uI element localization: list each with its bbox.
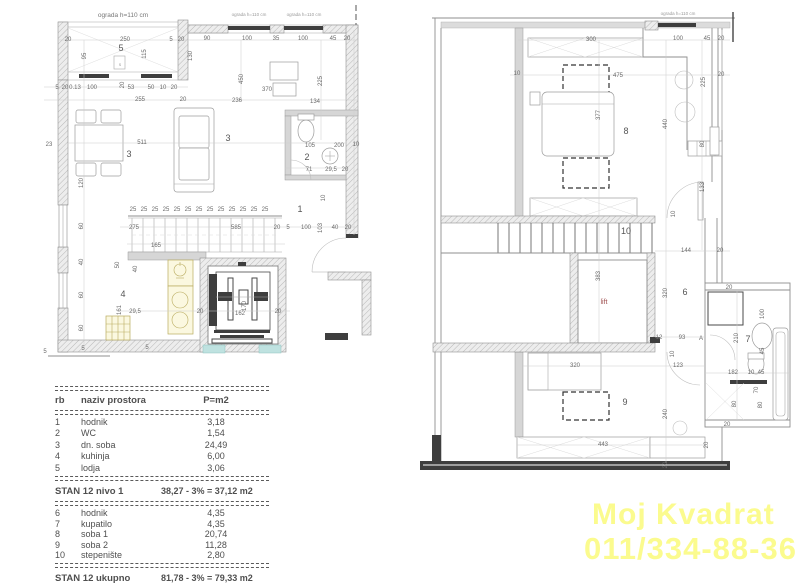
wardrobe <box>530 198 637 216</box>
kitchen-stove <box>168 286 193 334</box>
dim-label: 100 <box>673 36 684 42</box>
room-number-label: 10 <box>621 226 631 236</box>
watermark-phone: 011/334-88-36 <box>584 531 797 567</box>
outer-walls <box>420 12 735 470</box>
table-row: 1hodnik3,18 <box>55 417 269 428</box>
dim-label: 20 <box>178 37 185 43</box>
dim-label: 115 <box>142 49 148 59</box>
dim-label: 134 <box>310 99 321 105</box>
top-wall <box>188 5 358 33</box>
total-value: 81,78 - 3% = 79,33 m2 <box>161 573 269 583</box>
dim-label: 20 <box>62 85 69 91</box>
row-rb: 10 <box>55 550 81 561</box>
dim-label: 20 <box>345 225 352 231</box>
washing-machine <box>708 292 743 325</box>
dim-label: 95 <box>82 52 88 59</box>
dim-label: 10 <box>671 210 677 217</box>
dim-label: 20 <box>717 248 724 254</box>
room-number-label: 1 <box>297 204 302 214</box>
dim-label: 275 <box>129 225 140 231</box>
dim-label: s <box>119 62 122 67</box>
window-sill <box>284 26 323 30</box>
room-number-label: 2 <box>304 152 309 162</box>
dim-label: 144 <box>681 248 692 254</box>
dim-label: 225 <box>701 76 707 87</box>
dim-label: 255 <box>135 97 146 103</box>
right-plan-labels: ograda h=110 cm3001004520104752022537744… <box>514 11 766 468</box>
window-sill <box>141 74 172 78</box>
table-header: rb naziv prostora P=m2 <box>55 393 269 408</box>
dim-label: 182 <box>728 370 739 376</box>
dim-label: 25 <box>174 207 181 213</box>
dim-label: 25 <box>152 207 159 213</box>
dim-label: 20 <box>180 97 187 103</box>
left-outer-wall <box>58 80 68 352</box>
dim-label: 10 <box>514 71 521 77</box>
dim-label: 23 <box>46 142 53 148</box>
chair <box>101 110 121 123</box>
room-number-label: 5 <box>118 43 123 53</box>
window-sill <box>228 26 270 30</box>
table-row: 9soba 211,28 <box>55 540 269 551</box>
washbasin <box>752 323 772 349</box>
dim-label: 200 <box>334 143 345 149</box>
dim-label: ograda h=110 cm <box>287 12 322 17</box>
row-name: soba 2 <box>81 540 163 551</box>
dim-label: 25 <box>229 207 236 213</box>
dim-label: 25 <box>163 207 170 213</box>
room-number-label: 4 <box>120 289 125 299</box>
room-area-table: rb naziv prostora P=m2 1hodnik3,182WC1,5… <box>55 384 269 583</box>
dim-label: 25 <box>130 207 137 213</box>
radiator <box>710 127 719 155</box>
entry-door-arc <box>312 238 346 272</box>
row-area: 3,18 <box>163 417 269 428</box>
table-row: 6hodnik4,35 <box>55 508 269 519</box>
bottom-wall <box>48 340 206 356</box>
table-divider <box>55 476 269 481</box>
dim-label: ograda h=110 cm <box>98 12 148 19</box>
room6-hodnik <box>650 182 717 385</box>
window-sill <box>79 74 109 78</box>
dim-label: 0.13 <box>69 85 81 91</box>
header-name: naziv prostora <box>81 395 163 406</box>
dim-label: ograda h=110 cm <box>232 12 267 17</box>
bed <box>542 92 614 156</box>
row-area: 24,49 <box>163 440 269 451</box>
right-plan: ograda h=110 cm3001004520104752022537744… <box>420 11 790 470</box>
table-divider <box>55 563 269 568</box>
dim-label: 10 <box>160 85 167 91</box>
dim-label: 45 <box>704 36 711 42</box>
header-area: P=m2 <box>163 395 269 406</box>
dim-label: 29,5 <box>325 167 337 173</box>
dim-label: 377 <box>596 109 602 120</box>
room8-soba1 <box>528 28 722 218</box>
table-divider <box>55 386 269 391</box>
total-row: STAN 12 ukupno 81,78 - 3% = 79,33 m2 <box>55 570 269 583</box>
dim-label: 25 <box>196 207 203 213</box>
dim-label: 100 <box>87 85 98 91</box>
room-number-label: 8 <box>623 126 628 136</box>
dim-label: 80 <box>758 401 764 408</box>
dim-label: 25 <box>207 207 214 213</box>
dim-label: 60 <box>79 291 85 298</box>
level1-rows: 1hodnik3,182WC1,543dn. soba24,494kuhinja… <box>55 417 269 474</box>
dim-label: 320 <box>570 363 581 369</box>
dim-label: 475 <box>613 73 624 79</box>
dim-label: 40 <box>79 258 85 265</box>
knee-wall <box>643 28 687 150</box>
chair <box>76 110 96 123</box>
dim-label: 45 <box>760 347 766 354</box>
table-row: 2WC1,54 <box>55 428 269 439</box>
chair <box>101 163 121 176</box>
dim-label: 25 <box>240 207 247 213</box>
dim-label: 12 <box>656 335 663 341</box>
room-number-label: 3 <box>126 149 131 159</box>
dim-label: 225 <box>318 75 324 86</box>
dim-label: 70 <box>754 386 760 393</box>
row-rb: 7 <box>55 519 81 530</box>
row-area: 4,35 <box>163 508 269 519</box>
dim-label: A <box>699 336 703 342</box>
floor-plan-sheet: ograda h=110 cmograda h=110 cmograda h=1… <box>0 0 800 583</box>
dim-label: 35 <box>273 36 280 42</box>
dim-label: 585 <box>231 225 242 231</box>
row-area: 11,28 <box>163 540 269 551</box>
table-row: 4kuhinja6,00 <box>55 451 269 462</box>
row-rb: 4 <box>55 451 81 462</box>
row-name: WC <box>81 428 163 439</box>
row-name: hodnik <box>81 508 163 519</box>
dim-label: 20 <box>274 225 281 231</box>
dim-label: 20 <box>663 461 669 468</box>
bathtub <box>773 328 788 420</box>
row-rb: 9 <box>55 540 81 551</box>
dim-label: 20 <box>275 309 282 315</box>
row-area: 1,54 <box>163 428 269 439</box>
row-name: soba 1 <box>81 529 163 540</box>
dim-label: 25 <box>262 207 269 213</box>
lift-shaft-level2 <box>433 253 655 352</box>
dim-label: 20 <box>344 36 351 42</box>
dim-label: 60 <box>79 324 85 331</box>
dim-label: 450 <box>239 73 245 84</box>
dim-label: 103 <box>318 222 324 233</box>
wardrobe <box>517 437 650 458</box>
dim-label: 25 <box>218 207 225 213</box>
dim-label: 20 <box>171 85 178 91</box>
dim-label: 20 <box>718 36 725 42</box>
table-divider <box>55 410 269 415</box>
dim-label: 80 <box>732 400 738 407</box>
table-divider <box>55 501 269 506</box>
room-number-label: 9 <box>622 397 627 407</box>
row-area: 4,35 <box>163 519 269 530</box>
row-rb: 5 <box>55 463 81 474</box>
table-row: 5lodja3,06 <box>55 463 269 474</box>
dim-label: 20 <box>197 309 204 315</box>
dim-label: 165 <box>151 243 162 249</box>
dim-label: 29,5 <box>129 309 141 315</box>
dim-label: 90 <box>204 36 211 42</box>
watermark-brand: Moj Kvadrat <box>592 498 775 532</box>
row-name: lodja <box>81 463 163 474</box>
dim-label: 45 <box>758 370 765 376</box>
dim-label: 105 <box>305 143 316 149</box>
room7-kupatilo <box>705 283 790 427</box>
dim-label: 370 <box>262 87 273 93</box>
dim-label: 10 <box>353 142 360 148</box>
dim-label: 130 <box>188 50 194 61</box>
row-area: 2,80 <box>163 550 269 561</box>
table-row: 7kupatilo4,35 <box>55 519 269 530</box>
room-number-label: 7 <box>745 334 750 344</box>
dim-label: 300 <box>586 37 597 43</box>
cabinet <box>270 62 298 96</box>
dim-label: 100 <box>298 36 309 42</box>
dim-label: 50 <box>148 85 155 91</box>
dim-label: 443 <box>598 442 609 448</box>
dim-label: 100 <box>760 308 766 319</box>
dim-label: 20 <box>724 422 731 428</box>
table-row: 10stepenište2,80 <box>55 550 269 561</box>
row-area: 6,00 <box>163 451 269 462</box>
dim-label: 5 <box>286 225 290 231</box>
chair <box>76 163 96 176</box>
roof-window <box>563 392 609 420</box>
dim-label: 53 <box>128 85 135 91</box>
lift-pit-pad <box>259 345 281 353</box>
subtotal-value: 38,27 - 3% = 37,12 m2 <box>161 486 269 497</box>
table-row: 3dn. soba24,49 <box>55 440 269 451</box>
toilet <box>298 120 314 142</box>
dim-label: 45 <box>330 36 337 42</box>
dim-label: 383 <box>596 270 602 281</box>
row-area: 3,06 <box>163 463 269 474</box>
header-rb: rb <box>55 395 81 406</box>
chair <box>675 71 693 89</box>
roof-window <box>563 158 609 188</box>
lift-pit-pad <box>203 345 225 353</box>
dim-label: 240 <box>663 408 669 419</box>
row-name: stepenište <box>81 550 163 561</box>
row-rb: 8 <box>55 529 81 540</box>
dim-label: 100 <box>242 36 253 42</box>
dim-label: 40 <box>332 225 339 231</box>
dim-label: 20 <box>342 167 349 173</box>
total-label: STAN 12 ukupno <box>55 573 161 583</box>
row-name: kuhinja <box>81 451 163 462</box>
dim-label: 161 <box>117 304 123 315</box>
row-area: 20,74 <box>163 529 269 540</box>
dim-label: 210 <box>734 332 740 343</box>
nightstand <box>530 92 540 105</box>
dim-label: 50 <box>115 261 121 268</box>
table-row: 8soba 120,74 <box>55 529 269 540</box>
dim-label: 20 <box>120 81 126 88</box>
dim-label: 170 <box>242 300 248 311</box>
row-name: hodnik <box>81 417 163 428</box>
left-plan: ograda h=110 cmograda h=110 cmograda h=1… <box>43 5 371 356</box>
dim-label: 60 <box>79 222 85 229</box>
subtotal-level1: STAN 12 nivo 1 38,27 - 3% = 37,12 m2 <box>55 483 269 499</box>
door-arc <box>710 335 735 360</box>
dim-label: 320 <box>663 287 669 298</box>
level2-rows: 6hodnik4,357kupatilo4,358soba 120,749sob… <box>55 508 269 561</box>
roof-window <box>563 65 609 95</box>
desk <box>528 353 601 390</box>
dim-label: 80 <box>700 140 706 147</box>
row-rb: 2 <box>55 428 81 439</box>
window-sill <box>658 23 696 27</box>
row-rb: 3 <box>55 440 81 451</box>
dim-label: 133 <box>700 181 706 192</box>
chair <box>675 102 695 122</box>
dim-label: 236 <box>232 98 243 104</box>
dim-label: 20 <box>65 37 72 43</box>
kitchen-grid-cabinet <box>106 316 130 340</box>
dim-label: 25 <box>185 207 192 213</box>
dim-label: 20 <box>718 72 725 78</box>
row-rb: 1 <box>55 417 81 428</box>
dim-label: 123 <box>673 363 684 369</box>
row-name: kupatilo <box>81 519 163 530</box>
dim-label: 10 <box>321 194 327 201</box>
dim-label: 511 <box>137 140 147 146</box>
row-name: dn. soba <box>81 440 163 451</box>
dim-label: 5 <box>43 349 47 355</box>
dim-label: ograda h=110 cm <box>661 11 696 16</box>
dim-label: 120 <box>79 177 85 188</box>
dim-label: 10 <box>748 370 755 376</box>
room-number-label: 6 <box>682 287 687 297</box>
dim-label: 10 <box>670 350 676 357</box>
subtotal-label: STAN 12 nivo 1 <box>55 486 161 497</box>
dim-label: 20 <box>704 441 710 448</box>
room-number-label: 3 <box>225 133 230 143</box>
dim-label: 25 <box>141 207 148 213</box>
dim-label: 100 <box>301 225 312 231</box>
dim-label: 440 <box>663 118 669 129</box>
lift-label: lift <box>601 299 608 306</box>
dim-label: 25 <box>251 207 258 213</box>
dim-label: 20 <box>726 285 733 291</box>
dim-label: 93 <box>679 335 686 341</box>
sofa <box>174 108 214 192</box>
dim-label: 40 <box>133 265 139 272</box>
dim-label: 71 <box>306 167 313 173</box>
row-rb: 6 <box>55 508 81 519</box>
